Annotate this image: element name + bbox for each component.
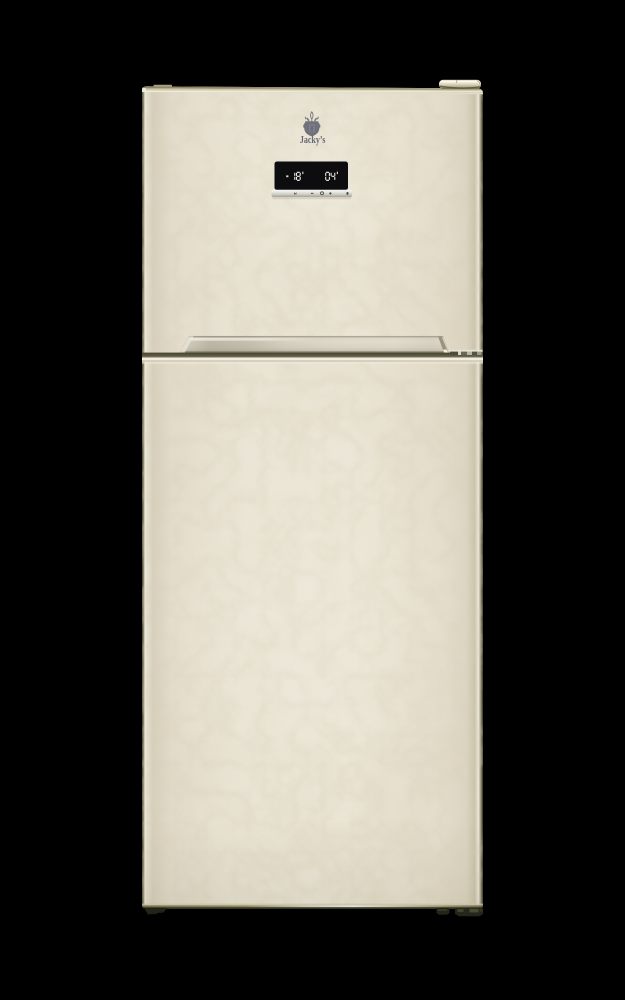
svg-text:Jacky’s: Jacky’s	[300, 135, 326, 146]
